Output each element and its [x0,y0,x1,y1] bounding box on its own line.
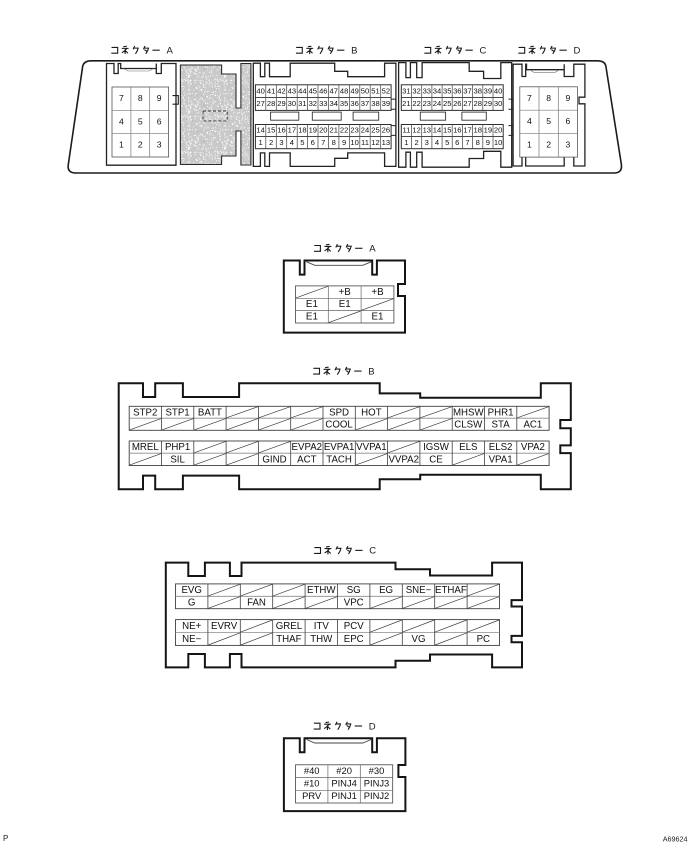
svg-text:11: 11 [402,126,410,135]
svg-text:1: 1 [527,140,532,150]
svg-text:13: 13 [382,138,390,147]
svg-text:4: 4 [119,116,124,126]
svg-text:16: 16 [277,126,285,135]
svg-text:C: C [480,46,487,57]
svg-text:PINJ1: PINJ1 [331,790,357,801]
svg-text:46: 46 [319,86,327,95]
svg-text:37: 37 [361,99,369,108]
svg-text:3: 3 [279,138,283,147]
svg-text:9: 9 [486,138,490,147]
svg-text:15: 15 [267,126,275,135]
svg-text:3: 3 [157,140,162,150]
svg-text:30: 30 [494,99,502,108]
svg-text:G: G [188,598,196,609]
svg-text:PC: PC [477,634,490,645]
svg-text:29: 29 [484,99,492,108]
svg-text:25: 25 [443,99,451,108]
svg-text:31: 31 [402,86,410,95]
svg-text:32: 32 [309,99,317,108]
svg-text:STP2: STP2 [133,407,157,418]
svg-text:E1: E1 [372,312,384,323]
svg-text:38: 38 [371,99,379,108]
svg-text:EVPA2: EVPA2 [292,442,323,453]
svg-text:NE−: NE− [182,634,201,645]
svg-text:5: 5 [546,116,551,126]
svg-text:10: 10 [350,138,358,147]
svg-text:CE: CE [429,454,443,465]
svg-text:40: 40 [494,86,502,95]
svg-text:THAF: THAF [276,634,301,645]
svg-text:PINJ3: PINJ3 [364,778,390,789]
svg-text:35: 35 [443,86,451,95]
svg-text:32: 32 [412,86,420,95]
svg-text:13: 13 [423,126,431,135]
svg-text:24: 24 [433,99,441,108]
svg-text:A: A [167,46,174,57]
svg-text:2: 2 [546,140,551,150]
svg-text:27: 27 [463,99,471,108]
svg-text:SPD: SPD [329,407,349,418]
svg-text:19: 19 [309,126,317,135]
svg-text:STA: STA [492,419,511,430]
svg-text:1: 1 [258,138,262,147]
svg-text:VPA2: VPA2 [521,442,545,453]
svg-text:C: C [369,546,376,557]
svg-text:23: 23 [423,99,431,108]
svg-text:EVPA1: EVPA1 [324,442,355,453]
svg-text:VPA1: VPA1 [489,454,513,465]
svg-text:7: 7 [321,138,325,147]
svg-text:#30: #30 [369,765,385,776]
svg-text:19: 19 [484,126,492,135]
svg-text:28: 28 [267,99,275,108]
svg-text:2: 2 [414,138,418,147]
svg-text:B: B [351,46,357,57]
svg-text:#10: #10 [304,778,320,789]
svg-text:ETHAF: ETHAF [435,585,467,596]
svg-text:11: 11 [361,138,369,147]
svg-text:34: 34 [329,99,337,108]
svg-text:PINJ4: PINJ4 [331,778,357,789]
svg-text:MHSW: MHSW [453,407,485,418]
svg-text:12: 12 [371,138,379,147]
svg-text:EVG: EVG [181,585,201,596]
svg-text:8: 8 [332,138,336,147]
svg-text:23: 23 [350,126,358,135]
svg-text:#40: #40 [304,765,320,776]
svg-text:6: 6 [311,138,315,147]
svg-text:EG: EG [379,585,393,596]
svg-text:+B: +B [371,287,384,298]
svg-text:6: 6 [455,138,459,147]
svg-text:PHR1: PHR1 [488,407,514,418]
svg-text:CLSW: CLSW [454,419,483,430]
svg-text:8: 8 [138,93,143,103]
svg-text:14: 14 [256,126,264,135]
svg-text:42: 42 [277,86,285,95]
svg-text:+B: +B [339,287,352,298]
svg-text:ELS: ELS [459,442,478,453]
svg-text:A69624: A69624 [663,835,688,844]
svg-text:43: 43 [288,86,296,95]
svg-text:18: 18 [473,126,481,135]
svg-text:6: 6 [566,116,571,126]
svg-text:20: 20 [319,126,327,135]
svg-text:HOT: HOT [361,407,382,418]
svg-text:7: 7 [119,93,124,103]
svg-text:47: 47 [329,86,337,95]
svg-text:10: 10 [494,138,502,147]
svg-text:#20: #20 [336,765,352,776]
svg-text:50: 50 [361,86,369,95]
svg-text:22: 22 [412,99,420,108]
svg-text:9: 9 [157,93,162,103]
svg-text:VVPA1: VVPA1 [356,442,387,453]
svg-text:21: 21 [402,99,410,108]
svg-text:ACT: ACT [297,454,316,465]
svg-text:9: 9 [342,138,346,147]
svg-text:BATT: BATT [198,407,222,418]
svg-text:3: 3 [566,140,571,150]
svg-text:5: 5 [138,116,143,126]
svg-text:17: 17 [463,126,471,135]
svg-text:P: P [3,834,8,843]
svg-text:COOL: COOL [325,419,353,430]
svg-text:E1: E1 [306,312,318,323]
svg-text:37: 37 [463,86,471,95]
svg-text:6: 6 [157,116,162,126]
svg-text:3: 3 [425,138,429,147]
svg-text:VVPA2: VVPA2 [388,454,419,465]
svg-text:2: 2 [138,140,143,150]
svg-text:SNE−: SNE− [406,585,432,596]
svg-text:15: 15 [443,126,451,135]
svg-text:30: 30 [288,99,296,108]
svg-text:18: 18 [298,126,306,135]
svg-text:1: 1 [404,138,408,147]
svg-text:VG: VG [412,634,426,645]
svg-text:14: 14 [433,126,441,135]
svg-text:36: 36 [350,99,358,108]
svg-text:12: 12 [412,126,420,135]
svg-text:MREL: MREL [132,442,160,453]
svg-text:16: 16 [453,126,461,135]
svg-text:22: 22 [340,126,348,135]
svg-text:26: 26 [382,126,390,135]
svg-text:EPC: EPC [344,634,364,645]
svg-text:SIL: SIL [170,454,185,465]
svg-text:7: 7 [527,93,532,103]
svg-text:34: 34 [433,86,441,95]
svg-text:25: 25 [371,126,379,135]
svg-text:26: 26 [453,99,461,108]
svg-text:29: 29 [277,99,285,108]
svg-text:NE+: NE+ [182,621,201,632]
svg-text:24: 24 [361,126,369,135]
svg-text:8: 8 [476,138,480,147]
svg-text:2: 2 [269,138,273,147]
svg-text:B: B [368,366,374,377]
svg-text:STP1: STP1 [165,407,189,418]
svg-text:4: 4 [527,116,532,126]
svg-text:45: 45 [309,86,317,95]
svg-text:36: 36 [453,86,461,95]
svg-text:33: 33 [423,86,431,95]
svg-text:5: 5 [300,138,304,147]
svg-text:9: 9 [566,93,571,103]
svg-text:TACH: TACH [326,454,352,465]
svg-text:35: 35 [340,99,348,108]
svg-text:ETHW: ETHW [307,585,336,596]
svg-text:5: 5 [445,138,449,147]
svg-text:EVRV: EVRV [211,621,238,632]
svg-text:28: 28 [473,99,481,108]
svg-text:SG: SG [347,585,361,596]
svg-text:PCV: PCV [344,621,364,632]
svg-text:48: 48 [340,86,348,95]
svg-text:40: 40 [256,86,264,95]
svg-text:41: 41 [267,86,275,95]
svg-text:AC1: AC1 [523,419,542,430]
svg-text:4: 4 [435,138,439,147]
svg-text:THW: THW [310,634,333,645]
svg-text:52: 52 [382,86,390,95]
svg-text:49: 49 [350,86,358,95]
svg-text:PRV: PRV [302,790,322,801]
svg-text:1: 1 [119,140,124,150]
svg-text:39: 39 [382,99,390,108]
svg-text:E1: E1 [306,299,318,310]
svg-text:GIND: GIND [262,454,286,465]
svg-text:4: 4 [290,138,294,147]
svg-text:FAN: FAN [247,598,266,609]
svg-text:GREL: GREL [276,621,303,632]
svg-text:39: 39 [484,86,492,95]
svg-text:44: 44 [298,86,306,95]
svg-text:38: 38 [473,86,481,95]
svg-text:D: D [574,46,581,57]
svg-text:E1: E1 [339,299,351,310]
svg-text:21: 21 [329,126,337,135]
svg-text:ELS2: ELS2 [489,442,513,453]
svg-text:8: 8 [546,93,551,103]
svg-text:A: A [369,244,376,255]
svg-text:27: 27 [256,99,264,108]
svg-text:17: 17 [288,126,296,135]
svg-text:D: D [369,721,376,732]
svg-text:PINJ2: PINJ2 [364,790,390,801]
svg-text:IGSW: IGSW [423,442,450,453]
svg-text:VPC: VPC [344,598,364,609]
svg-text:31: 31 [298,99,306,108]
svg-text:7: 7 [465,138,469,147]
svg-text:ITV: ITV [314,621,330,632]
svg-text:33: 33 [319,99,327,108]
svg-text:PHP1: PHP1 [165,442,190,453]
svg-text:51: 51 [371,86,379,95]
svg-text:20: 20 [494,126,502,135]
